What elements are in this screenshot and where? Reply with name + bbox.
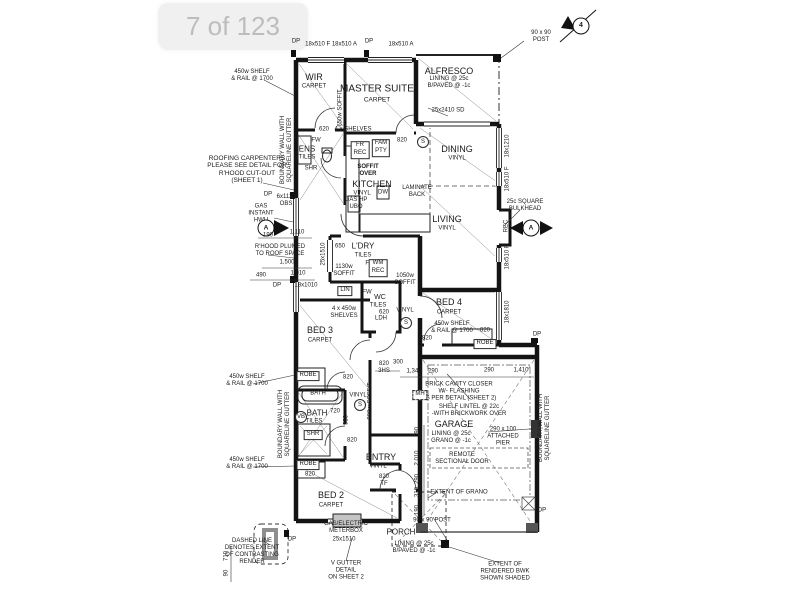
dim-190: 190 (263, 233, 273, 240)
dim-1010: 1,010 (290, 271, 305, 278)
dp-label: DP (292, 39, 300, 46)
room-living: LIVING (432, 214, 462, 224)
dim-290: 290 (428, 369, 438, 376)
dim-290-v: 290 (415, 474, 422, 484)
soffit-over-note: SOFFIT OVER (357, 164, 378, 178)
floorplan-page: 7 of 123 DP 18x510 F 18x510 A DP 18x510 … (0, 0, 800, 600)
room-living-finish: VINYL (438, 226, 455, 233)
dim-290-v: 290 (415, 427, 422, 437)
room-master-finish: CARPET (364, 96, 390, 103)
sliding-door-bed2: 25x1510 (332, 537, 355, 544)
room-entry: ENTRY (366, 452, 396, 462)
bulkhead-note: 25c SQUARE BULKHEAD (507, 199, 544, 213)
dim-2010-v: 2,010 (415, 450, 422, 465)
fw-label: FW (362, 290, 371, 297)
dim-290: 290 (484, 368, 494, 375)
shower-label: SHR (304, 430, 323, 440)
linen-cupboard-label: LIN (337, 286, 352, 296)
window-code-obs: 6x1110 OBS (277, 194, 296, 208)
boundary-wall-note-left-2: BOUNDARY WALL WITH SQUARELINE GUTTER (278, 390, 292, 458)
room-master: MASTER SUITE (340, 83, 414, 95)
dishwasher-label: DW (378, 190, 388, 197)
window-code-top-1: 18x510 F 18x510 A (305, 42, 357, 49)
north-arrow-number: 4 (579, 22, 583, 30)
v-gutter-note: V GUTTER DETAIL ON SHEET 2 (328, 561, 364, 582)
meterbox-note: GAS/ELECTRIC METERBOX (324, 521, 368, 535)
room-wc: WC (374, 294, 386, 302)
shelf-rail-note-1: 450w SHELF & RAIL @ 1700 (231, 69, 273, 83)
door-930: 930 (344, 415, 351, 425)
brick-cavity-note: BRICK CAVITY CLOSER W/- FLASHING AS PER … (422, 382, 497, 403)
room-alfresco-spec: LINING @ 25c B/PAVED @ -1c (428, 76, 471, 90)
soffit-1130-note: 1130w SOFFIT (333, 264, 354, 278)
room-bath: BATH (307, 408, 328, 417)
window-code-living-1: 18x510 F (505, 166, 512, 191)
room-bed2-finish: CARPET (319, 503, 343, 510)
dashed-render-note: DASHED LINE DENOTES EXTENT OF CONTRASTIN… (225, 538, 279, 566)
page-indicator: 7 of 123 (158, 3, 308, 50)
shelf-rail-note-4: 450w SHELF & RAIL @ 1700 (431, 321, 473, 335)
manhole-label: MH (412, 390, 427, 400)
room-garage: GARAGE (435, 419, 474, 429)
room-bed4-finish: CARPET (437, 310, 461, 317)
dp-label: DP (538, 508, 546, 515)
smoke-detector-marker: S (400, 317, 412, 329)
room-bath-finish: TILES (306, 419, 323, 426)
roofing-note: ROOFING CARPENTERS PLEASE SEE DETAIL FOR… (207, 155, 286, 185)
dim-710: 710 (224, 551, 231, 561)
room-ens: ENS (299, 144, 315, 153)
window-code-living-2: 18x510 F (505, 244, 512, 269)
gas-hotplate-label: GAS HP UBO (345, 197, 368, 211)
extent-grano-note: EXTENT OF GRANO (430, 490, 487, 497)
recess-label: REC (504, 220, 511, 233)
window-code-top-2: 18x510 A (388, 42, 413, 49)
dim-1340: 1,340 (406, 369, 421, 376)
room-dining-finish: VINYL (448, 156, 465, 163)
ldh-label: LDH (375, 316, 387, 323)
soffit-650-note: 650w SOFFIT (338, 89, 345, 126)
dp-label: DP (264, 192, 272, 199)
window-code-dining: 18x1210 (505, 134, 512, 157)
rhood-note: R'HOOD PLUMED TO ROOF SPACE (255, 244, 305, 258)
shelf-lintel-note: SHELF LINTEL @ 22c -WITH BRICKWORK OVER (432, 404, 507, 418)
room-wir: WIR (305, 72, 323, 82)
window-code-bed4: 18x1810 (505, 300, 512, 323)
dim-190-v: 190 (415, 505, 422, 515)
smoke-detector-marker: S (354, 399, 366, 411)
dp-label: DP (273, 283, 281, 290)
dp-label: DP (365, 39, 373, 46)
robe-label: ROBE (296, 460, 319, 470)
dim-90: 90 (224, 570, 231, 577)
door-820-tf: 820 TF (379, 474, 389, 488)
bathtub-label: BATH (310, 391, 326, 398)
shelf-rail-note-2: 450w SHELF & RAIL @ 1700 (226, 374, 268, 388)
washing-machine-recess: WM REC (369, 259, 388, 277)
hall-finish: VINYL (396, 308, 413, 315)
window-code-1010: 18x1010 (294, 283, 317, 290)
room-entry-finish: VINYL (369, 464, 386, 471)
room-bed2: BED 2 (318, 490, 344, 500)
dp-label: DP (288, 537, 296, 544)
dim-310-v: 310 (415, 487, 422, 497)
room-porch: PORCH (387, 527, 416, 536)
door-820: 820 (347, 438, 357, 445)
room-garage-spec: LINING @ 25c GRANO @ -1c (431, 431, 471, 445)
soffit-900-note: 900w SOFFIT (368, 382, 375, 419)
dim-1110: 1,110 (290, 230, 305, 237)
dp-label: DP (533, 332, 541, 339)
dim-1500: 1,500 (279, 260, 294, 267)
remote-door-note: REMOTE SECTIONAL DOOR (435, 452, 488, 466)
fridge-recess-label: FR REC (351, 141, 370, 159)
extent-bwk-note: EXTENT OF RENDERED BWK SHOWN SHADED (480, 562, 530, 583)
door-820: 820 (397, 138, 407, 145)
soffit-1050-note: 1050w SOFFIT (394, 273, 415, 287)
door-820: 820 (305, 472, 315, 479)
family-pantry-label: FAM PTY (372, 139, 390, 157)
shelf-rail-note-3: 450w SHELF & RAIL @ 1700 (226, 457, 268, 471)
room-alfresco: ALFRESCO (425, 66, 474, 76)
shelves-note: 4 x SHELVES (335, 127, 372, 134)
door-820-3hs: 820 3HS (378, 361, 390, 375)
sliding-door-alfresco: 25x2410 SD (431, 108, 464, 115)
room-wir-finish: CARPET (302, 84, 326, 91)
door-720: 720 (330, 409, 340, 416)
door-820: 820 (422, 336, 432, 343)
door-620: 620 (319, 127, 329, 134)
post-note-bottom: 90 x 90 POST (413, 518, 451, 525)
attached-pier-note: 290 x 100 ATTACHED PIER (487, 427, 518, 448)
door-820: 820 (480, 328, 490, 335)
door-650: 650 (335, 244, 345, 251)
room-bed3: BED 3 (307, 325, 333, 335)
post-note-top: 90 x 90 POST (531, 30, 551, 44)
dim-300: 300 (393, 360, 403, 367)
room-porch-spec: LINING @ 25c B/PAVED @ -1c (393, 541, 436, 555)
robe-label: ROBE (473, 339, 496, 349)
section-marker-a-right: A (523, 220, 540, 237)
room-wc-finish: TILES (370, 303, 387, 310)
sliding-door-ldry: 25x1510 (321, 242, 328, 265)
laminate-back-note: LAMINATE BACK (402, 185, 432, 199)
room-ens-finish: TILES (299, 155, 316, 162)
dim-490: 490 (256, 273, 266, 280)
fw-label: FW (311, 138, 320, 145)
room-ldry: L'DRY (352, 241, 375, 250)
boundary-wall-note-right: BOUNDARY WALL WITH SQUARELINE GUTTER (538, 394, 552, 462)
smoke-detector-marker: S (417, 136, 429, 148)
shower-label: SHR (305, 166, 318, 173)
room-bed3-finish: CARPET (308, 338, 332, 345)
room-kitchen: KITCHEN (352, 179, 392, 189)
dim-1410: 1,410 (513, 368, 528, 375)
room-bed4: BED 4 (436, 297, 462, 307)
shelves-450-note: 4 x 450w SHELVES (330, 306, 357, 320)
room-dining: DINING (441, 144, 473, 154)
robe-label: ROBE (296, 371, 319, 381)
door-820: 820 (343, 375, 353, 382)
vanity-basin-marker: VB (295, 411, 307, 423)
